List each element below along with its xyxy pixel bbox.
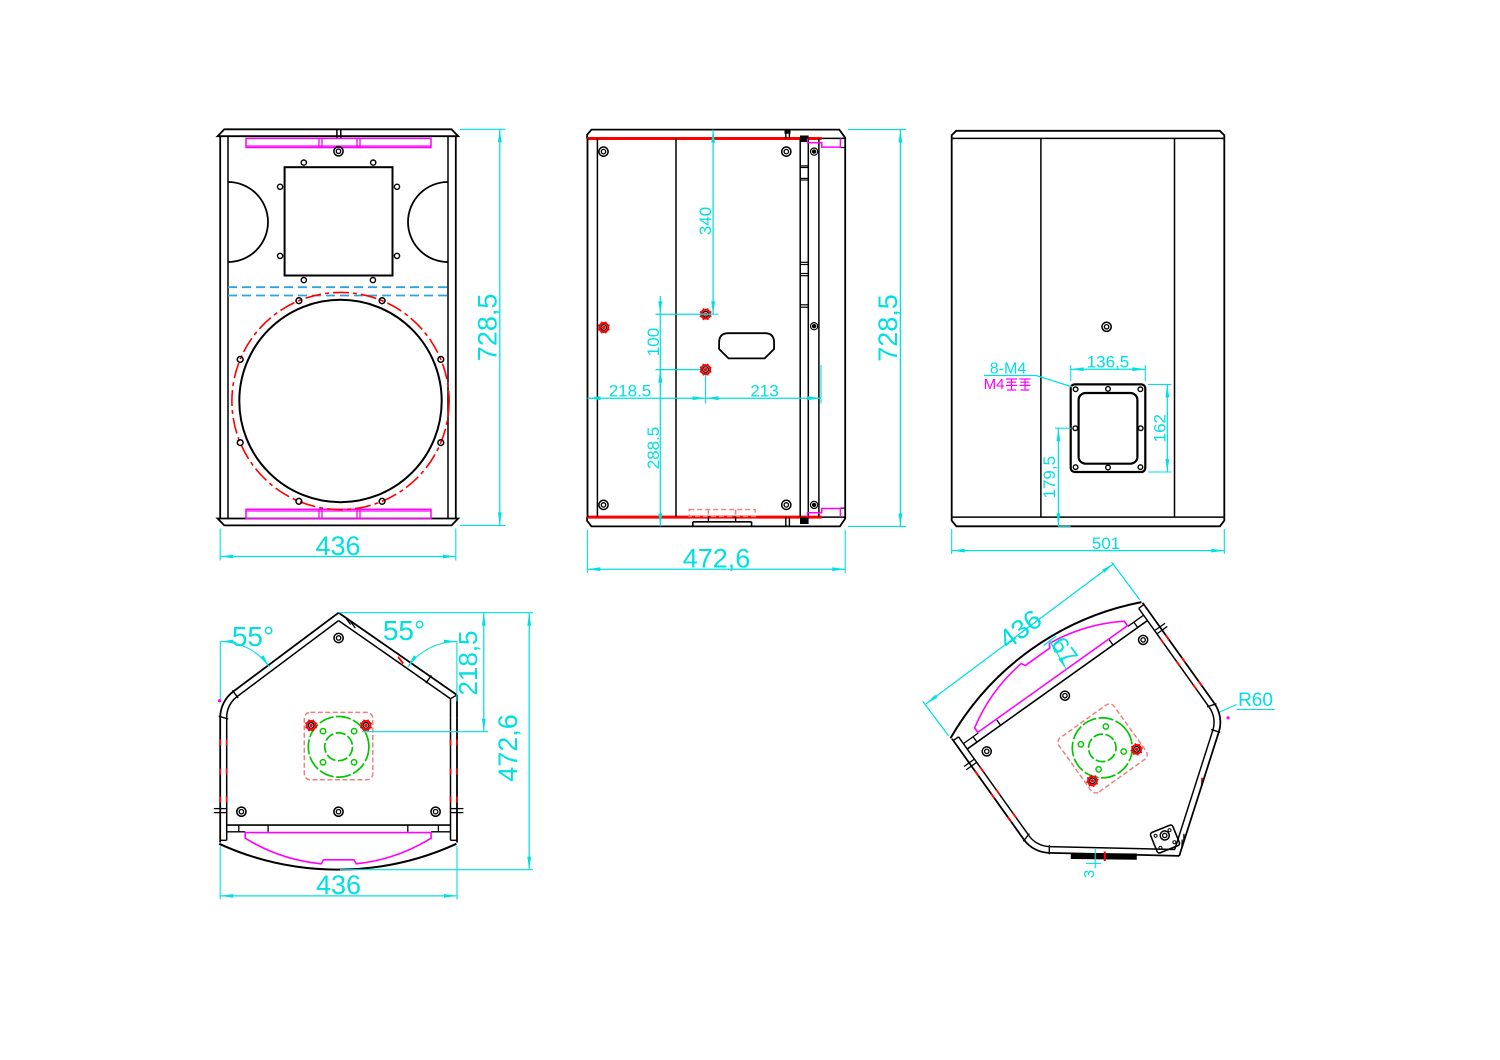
svg-text:218,5: 218,5 (453, 630, 483, 695)
svg-text:728,5: 728,5 (473, 294, 503, 362)
svg-text:55°: 55° (383, 615, 425, 646)
svg-text:179,5: 179,5 (1040, 456, 1059, 499)
svg-text:472,6: 472,6 (493, 714, 523, 782)
svg-text:100: 100 (644, 328, 663, 356)
svg-text:728,5: 728,5 (873, 294, 903, 362)
svg-text:501: 501 (1092, 534, 1120, 553)
svg-text:162: 162 (1151, 414, 1170, 442)
svg-text:55°: 55° (232, 621, 274, 652)
svg-text:136,5: 136,5 (1087, 352, 1130, 371)
svg-text:218.5: 218.5 (609, 381, 652, 400)
svg-text:R60: R60 (1238, 690, 1273, 711)
svg-text:3: 3 (1081, 870, 1098, 878)
svg-text:213: 213 (750, 381, 778, 400)
svg-text:436: 436 (315, 531, 360, 561)
svg-text:340: 340 (696, 207, 715, 235)
svg-text:288.5: 288.5 (644, 427, 663, 470)
svg-text:M4: M4 (984, 376, 1005, 393)
svg-text:436: 436 (316, 870, 361, 900)
svg-text:472,6: 472,6 (683, 544, 751, 574)
